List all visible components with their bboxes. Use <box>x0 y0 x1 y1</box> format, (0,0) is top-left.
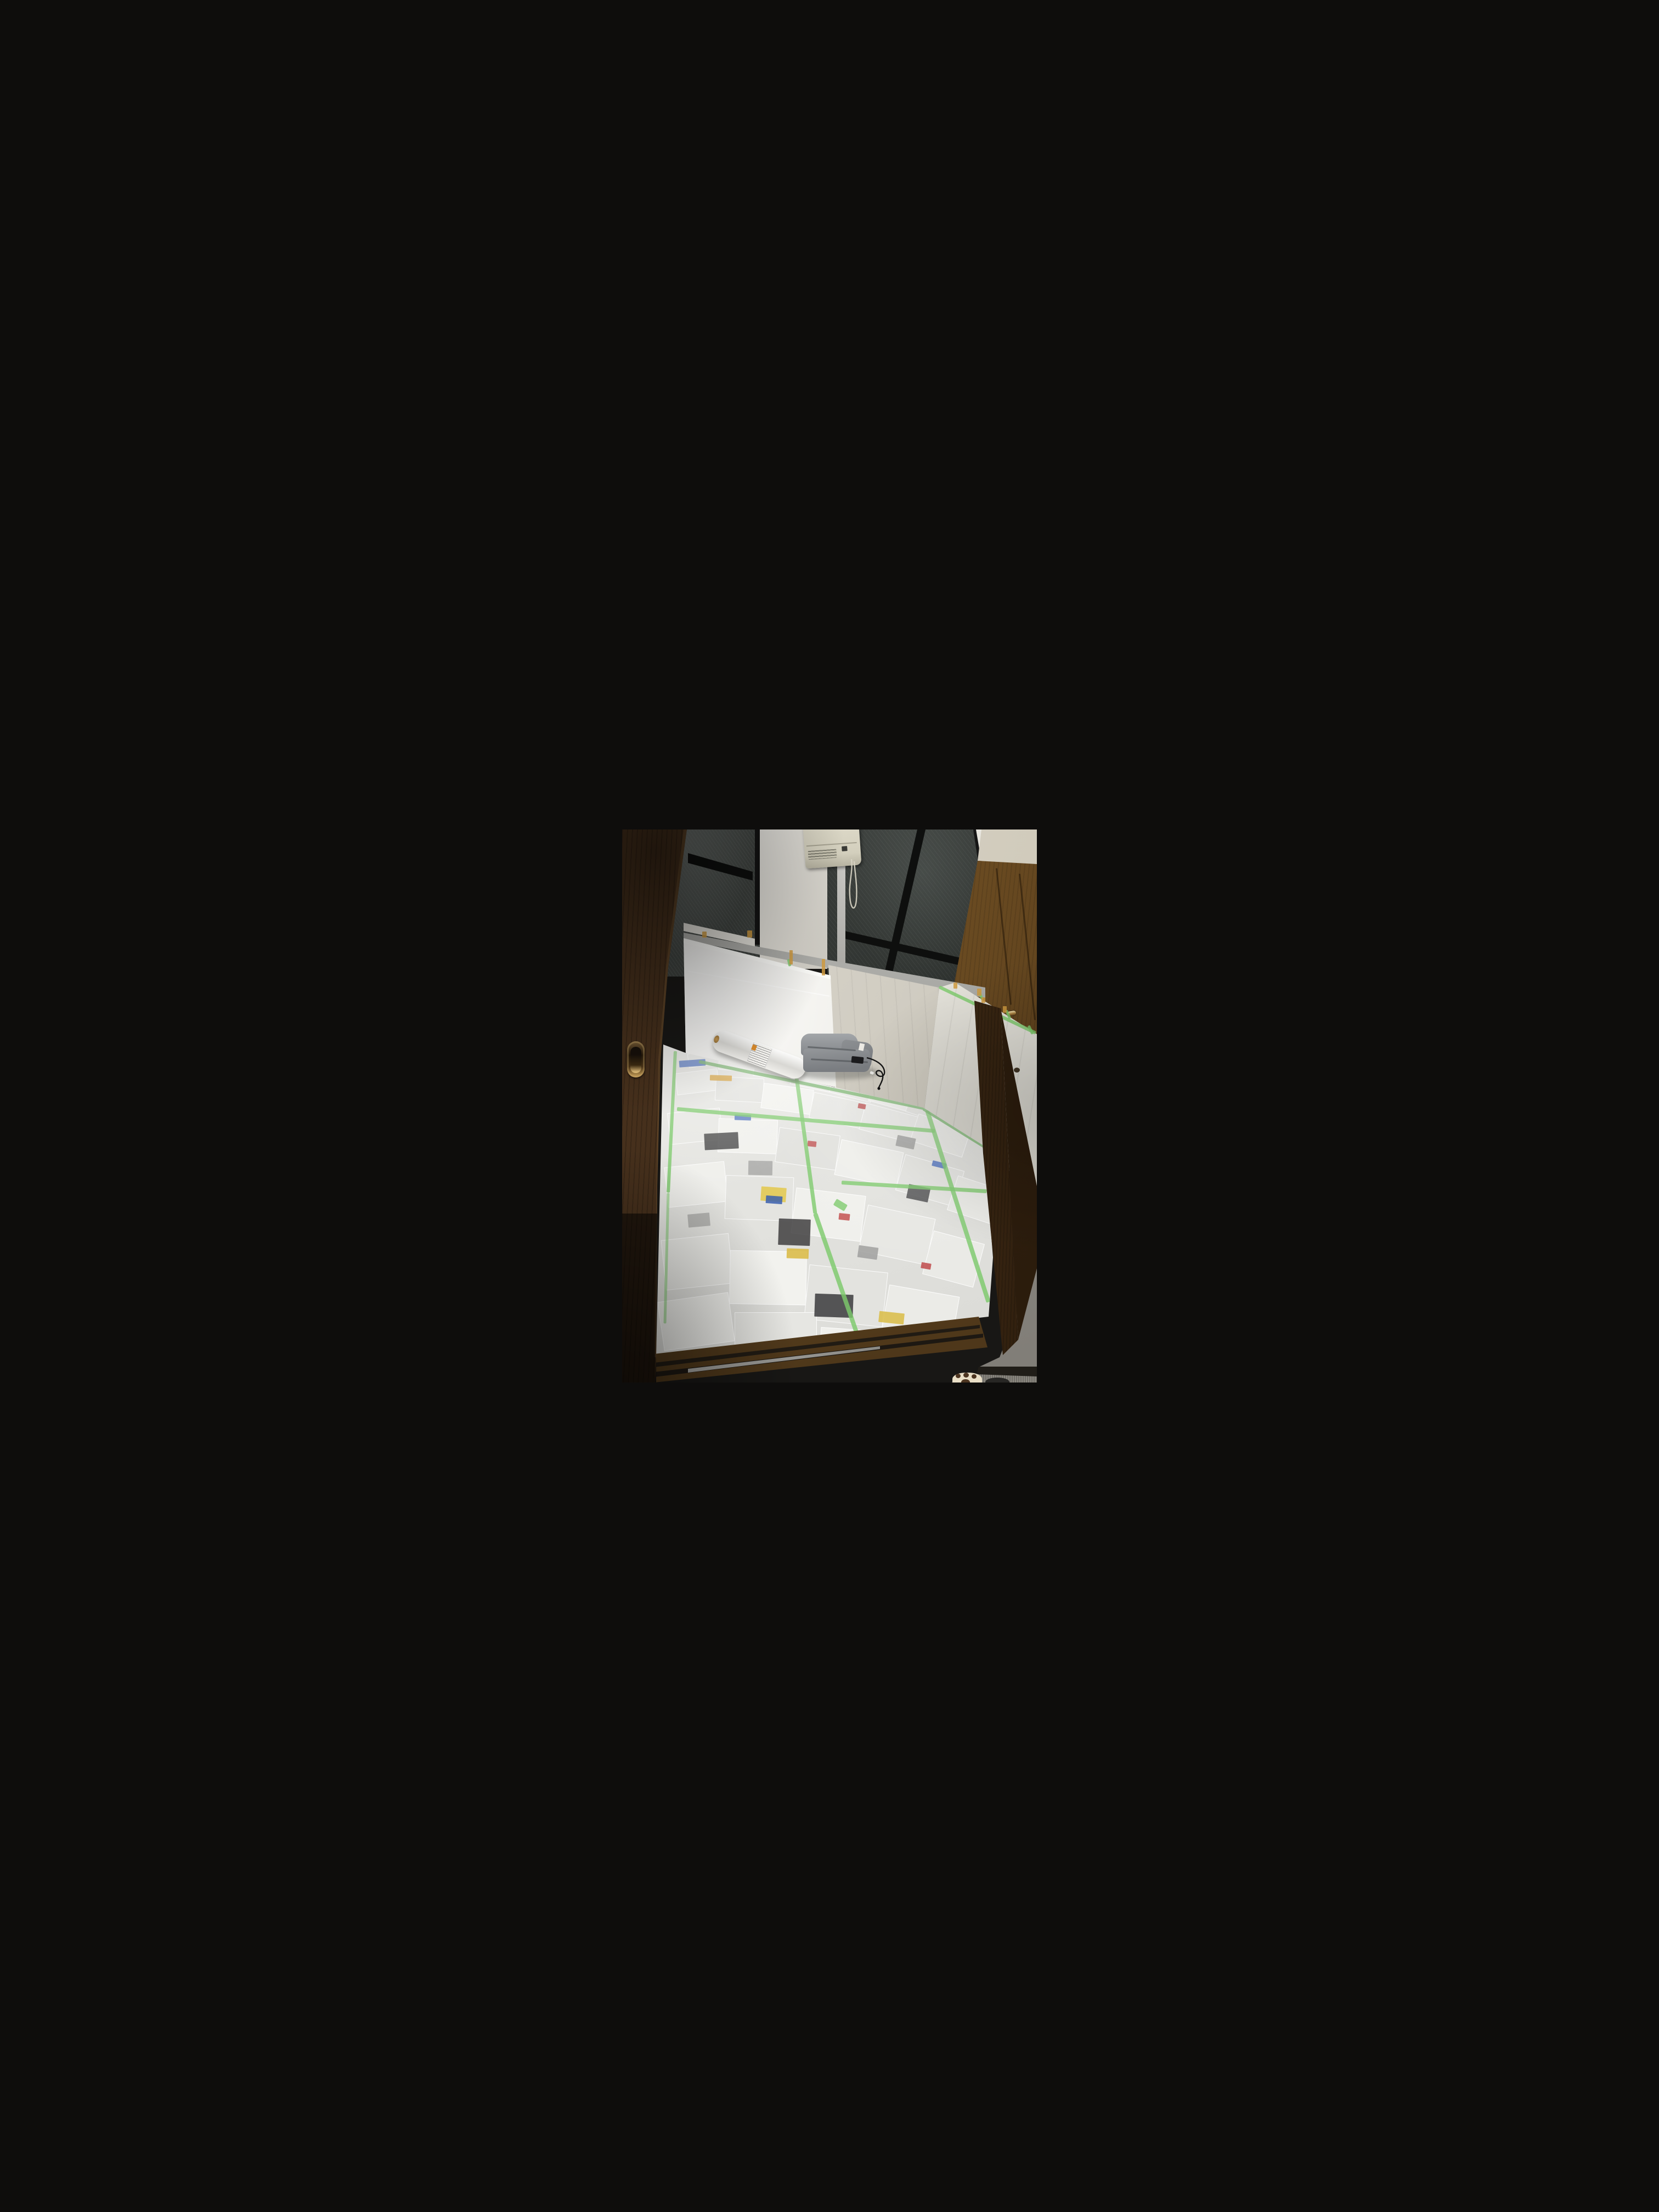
wood-knot <box>1014 1068 1020 1073</box>
masking-tape-bit <box>789 950 793 964</box>
plush-paw <box>952 1373 982 1383</box>
photo-room-renovation <box>622 830 1037 1383</box>
masking-tape-bit <box>981 997 985 1003</box>
masking-tape-bit <box>702 932 707 938</box>
paw-spot <box>963 1373 969 1378</box>
masking-tape-bit <box>822 959 825 975</box>
cable-controller <box>851 1056 864 1064</box>
paw-spot <box>956 1374 961 1378</box>
masking-tape-bit <box>747 930 752 938</box>
roll-core <box>713 1035 720 1043</box>
masking-tape-bit <box>977 989 981 996</box>
masking-tape-bit <box>1003 1006 1007 1013</box>
wall-tape-layer <box>622 830 1037 1383</box>
dark-slipper <box>985 1378 1009 1383</box>
masking-tape-bit <box>953 983 957 989</box>
door-handle-recess <box>630 1047 641 1073</box>
paw-pad <box>961 1379 970 1383</box>
paw-spot <box>972 1374 977 1379</box>
